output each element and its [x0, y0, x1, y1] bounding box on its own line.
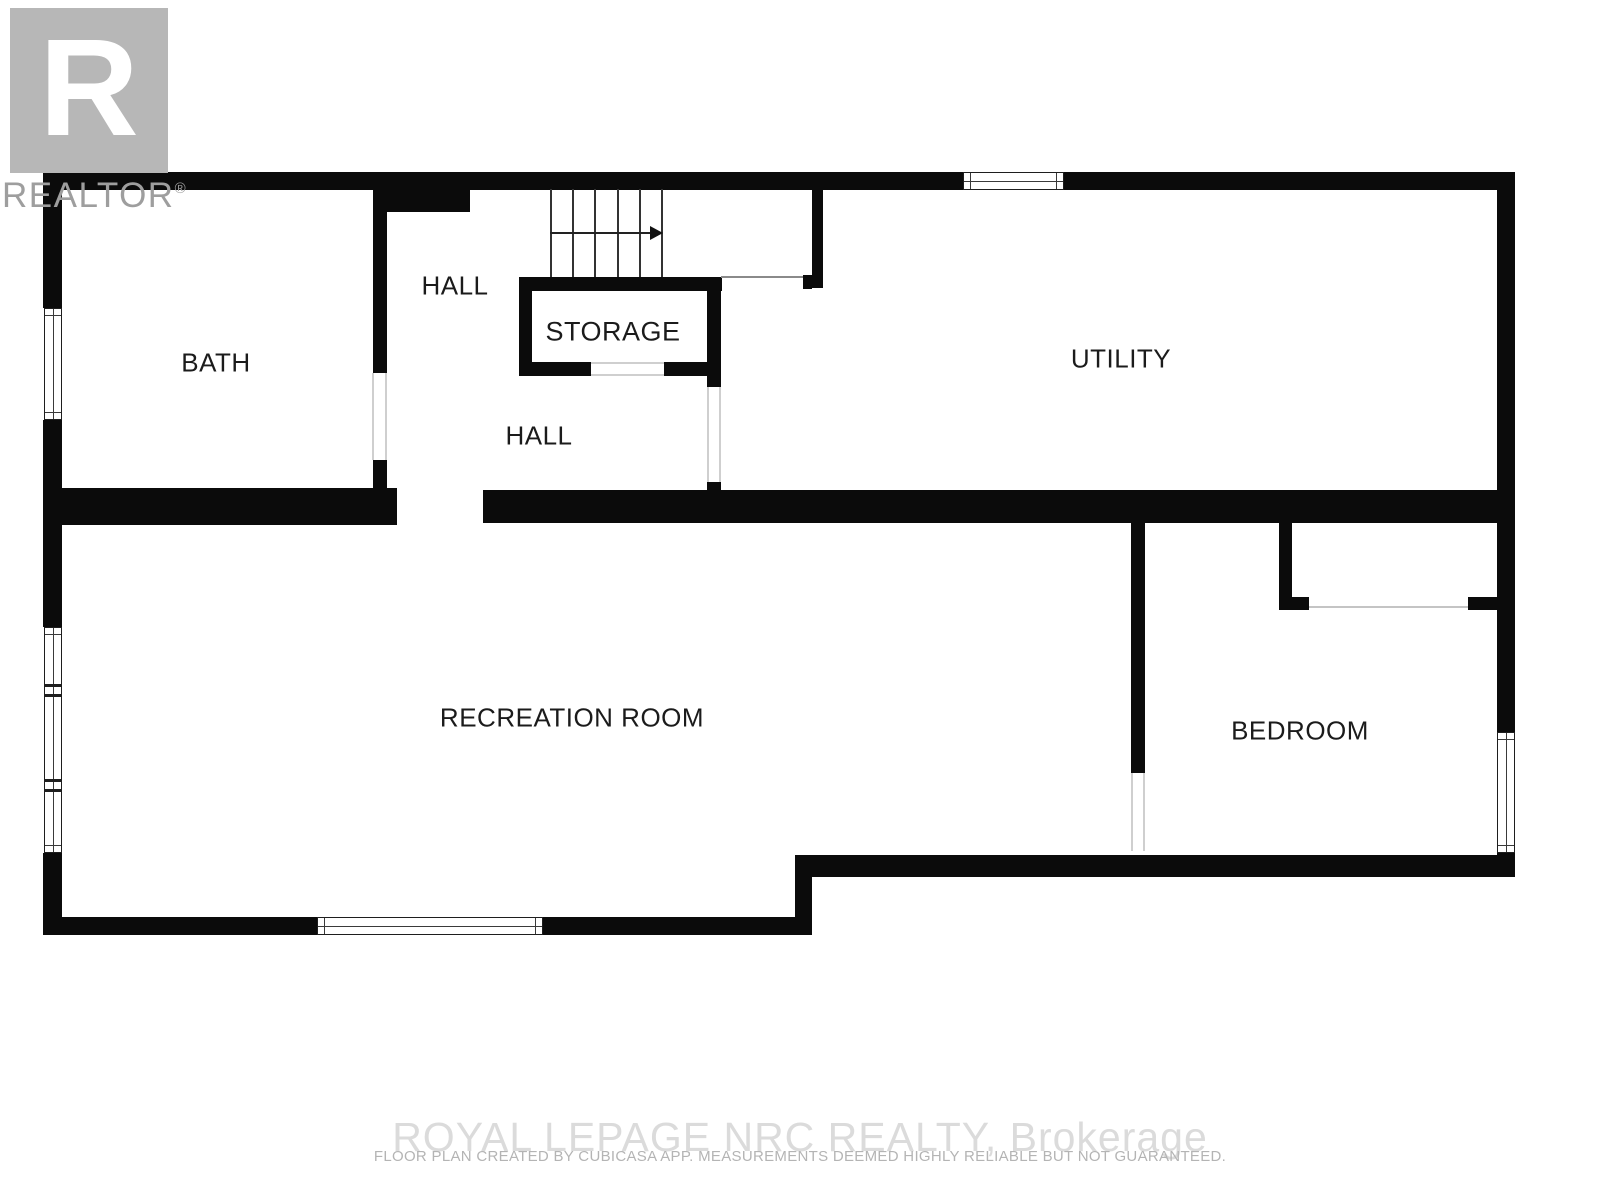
bedroom-bottom-wall — [795, 855, 1515, 877]
recreation-left-window — [44, 627, 62, 853]
stair-direction-line — [550, 232, 650, 234]
floor-plan: BATHHALLSTORAGEUTILITYHALLRECREATION ROO… — [0, 0, 1600, 1200]
storage-right-wall — [707, 277, 721, 387]
registered-trademark-symbol: ® — [175, 180, 186, 197]
room-label-hall-lower: HALL — [505, 421, 572, 452]
window-end-cap — [324, 918, 325, 934]
storage-bottom-wall-left — [519, 362, 591, 376]
hall-top-notch — [375, 188, 470, 212]
realtor-logo-r-icon: R — [39, 19, 139, 157]
bedroom-door-jamb-right — [1143, 773, 1145, 851]
hall-door-jamb-left — [707, 387, 709, 482]
bedroom-left-wall — [1131, 522, 1145, 773]
window-divider — [45, 684, 61, 687]
bedroom-window — [1497, 732, 1515, 853]
room-label-hall-upper: HALL — [421, 271, 488, 302]
window-center-line — [1506, 733, 1507, 852]
stair-landing-stub — [803, 275, 812, 289]
room-label-utility: UTILITY — [1071, 344, 1171, 375]
floor-plan-image: BATHHALLSTORAGEUTILITYHALLRECREATION ROO… — [0, 0, 1600, 1200]
window-end-cap — [970, 173, 971, 189]
middle-wall — [483, 490, 1515, 523]
room-label-recreation-room: RECREATION ROOM — [440, 703, 704, 734]
window-end-cap — [1498, 845, 1514, 846]
storage-right-wall-stub — [707, 482, 721, 494]
realtor-wordmark: REALTOR® — [2, 176, 186, 216]
window-divider — [45, 789, 61, 792]
window-end-cap — [45, 412, 61, 413]
window-divider — [45, 694, 61, 697]
window-end-cap — [45, 634, 61, 635]
utility-top-window — [963, 172, 1064, 190]
bath-bottom-wall — [43, 488, 397, 525]
outer-bottom-wall-right — [543, 917, 812, 935]
window-center-line — [53, 628, 54, 852]
window-divider — [45, 779, 61, 782]
outer-bottom-wall-left — [43, 917, 317, 935]
bedroom-entry-line — [1309, 606, 1468, 608]
bath-right-wall-lower — [373, 460, 387, 490]
storage-top-wall — [519, 277, 722, 291]
storage-door-line-top — [591, 362, 664, 364]
bath-door-jamb-left — [372, 373, 374, 460]
utility-left-wall — [812, 188, 823, 288]
hall-door-jamb-right — [719, 387, 721, 482]
bath-door-jamb-right — [385, 373, 387, 460]
bedroom-entry-right-flange — [1468, 597, 1497, 610]
room-label-bath: BATH — [181, 348, 250, 379]
bath-right-wall-upper — [373, 190, 387, 373]
realtor-wordmark-text: REALTOR — [2, 176, 175, 215]
window-end-cap — [45, 845, 61, 846]
bedroom-entry-left-foot — [1279, 597, 1309, 610]
room-label-storage: STORAGE — [545, 317, 680, 348]
staircase — [550, 189, 663, 277]
window-end-cap — [1056, 173, 1057, 189]
stair-direction-arrow-icon — [650, 226, 663, 240]
disclaimer-text: FLOOR PLAN CREATED BY CUBICASA APP. MEAS… — [374, 1148, 1226, 1165]
recreation-bottom-window — [317, 917, 543, 935]
window-end-cap — [1498, 739, 1514, 740]
bedroom-door-jamb-left — [1131, 773, 1133, 851]
stair-landing-line — [721, 276, 803, 278]
realtor-logo: R — [10, 8, 168, 173]
window-center-line — [318, 926, 542, 927]
outer-right-wall-upper — [1497, 172, 1515, 732]
window-center-line — [53, 309, 54, 419]
bath-window — [44, 308, 62, 420]
outer-top-wall — [43, 172, 1515, 190]
window-center-line — [964, 181, 1063, 182]
window-end-cap — [45, 315, 61, 316]
room-label-bedroom: BEDROOM — [1231, 716, 1369, 747]
outer-right-wall-lower — [1497, 853, 1515, 877]
storage-bottom-wall-right — [664, 362, 708, 376]
window-end-cap — [535, 918, 536, 934]
storage-door-line-bottom — [591, 374, 664, 376]
